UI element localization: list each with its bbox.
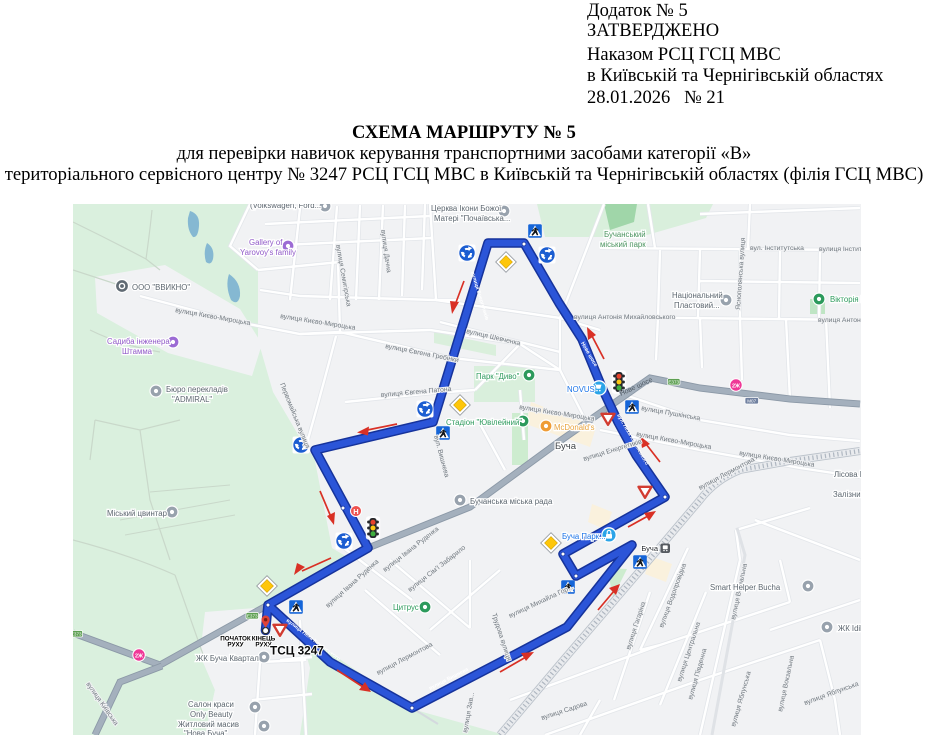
svg-text:Національний: Національний bbox=[672, 291, 723, 300]
svg-text:Церква Ікони Божої: Церква Ікони Божої bbox=[431, 204, 502, 213]
svg-text:Only Beauty: Only Beauty bbox=[190, 710, 233, 719]
svg-text:Бюро перекладів: Бюро перекладів bbox=[166, 385, 228, 394]
svg-text:вулиця Антонія: вулиця Антонія bbox=[818, 316, 861, 324]
svg-text:Парк "Диво": Парк "Диво" bbox=[476, 372, 520, 381]
svg-text:Лісова Б: Лісова Б bbox=[834, 470, 861, 479]
svg-text:2Ж: 2Ж bbox=[732, 384, 740, 390]
svg-text:Gallery of: Gallery of bbox=[249, 238, 283, 247]
svg-text:РУХУ: РУХУ bbox=[227, 642, 243, 649]
svg-text:Садиба інженера: Садиба інженера bbox=[107, 337, 170, 346]
svg-text:Штамма: Штамма bbox=[122, 347, 153, 356]
svg-text:E373: E373 bbox=[247, 614, 258, 619]
svg-text:Буча Парк...: Буча Парк... bbox=[562, 532, 606, 541]
svg-text:E373: E373 bbox=[73, 632, 82, 637]
svg-text:Матері "Почаївська...: Матері "Почаївська... bbox=[434, 214, 510, 223]
svg-text:Житловий масив: Житловий масив bbox=[178, 720, 239, 729]
svg-text:Цитрус: Цитрус bbox=[393, 603, 419, 612]
svg-text:Буча: Буча bbox=[555, 441, 577, 452]
svg-text:ООО "ВВИКНО": ООО "ВВИКНО" bbox=[132, 283, 190, 292]
svg-text:Буча: Буча bbox=[641, 544, 658, 553]
svg-text:Бучанський: Бучанський bbox=[604, 230, 646, 239]
svg-text:Вікторія П: Вікторія П bbox=[830, 295, 861, 304]
svg-text:"Нова Буча": "Нова Буча" bbox=[184, 729, 228, 735]
svg-text:McDonald's: McDonald's bbox=[554, 423, 595, 432]
svg-text:(Volkswagen, Ford...: (Volkswagen, Ford... bbox=[250, 204, 321, 210]
svg-text:ЖК Буча Квартал: ЖК Буча Квартал bbox=[196, 654, 259, 663]
svg-text:Yarovoy's family: Yarovoy's family bbox=[240, 248, 296, 257]
svg-text:Салон краси: Салон краси bbox=[188, 700, 234, 709]
svg-text:вул. Інститутська: вул. Інститутська bbox=[750, 245, 804, 252]
svg-text:Пластовий...: Пластовий... bbox=[674, 301, 720, 310]
svg-text:NOVUS: NOVUS bbox=[567, 385, 595, 394]
svg-text:ТСЦ 3247: ТСЦ 3247 bbox=[270, 644, 324, 658]
svg-text:ЖК Idil: ЖК Idil bbox=[838, 624, 861, 633]
svg-text:Стадіон "Ювілейний": Стадіон "Ювілейний" bbox=[446, 418, 522, 427]
svg-text:вулиця Антонія Михайловського: вулиця Антонія Михайловського bbox=[574, 313, 676, 321]
svg-text:E373: E373 bbox=[668, 380, 679, 385]
svg-text:вулиця Інститутська: вулиця Інститутська bbox=[819, 246, 861, 253]
svg-text:міський парк: міський парк bbox=[600, 240, 646, 249]
svg-text:"ADMIRAL": "ADMIRAL" bbox=[172, 395, 212, 404]
svg-text:2Ж: 2Ж bbox=[135, 654, 143, 660]
svg-text:Міський цвинтар: Міський цвинтар bbox=[107, 509, 168, 518]
svg-text:Бучанська міська рада: Бучанська міська рада bbox=[470, 497, 553, 506]
svg-text:Smart Helper Bucha: Smart Helper Bucha bbox=[710, 583, 781, 592]
svg-text:Залізни: Залізни bbox=[833, 490, 861, 499]
svg-text:M07: M07 bbox=[747, 399, 756, 404]
svg-text:H: H bbox=[353, 507, 358, 516]
